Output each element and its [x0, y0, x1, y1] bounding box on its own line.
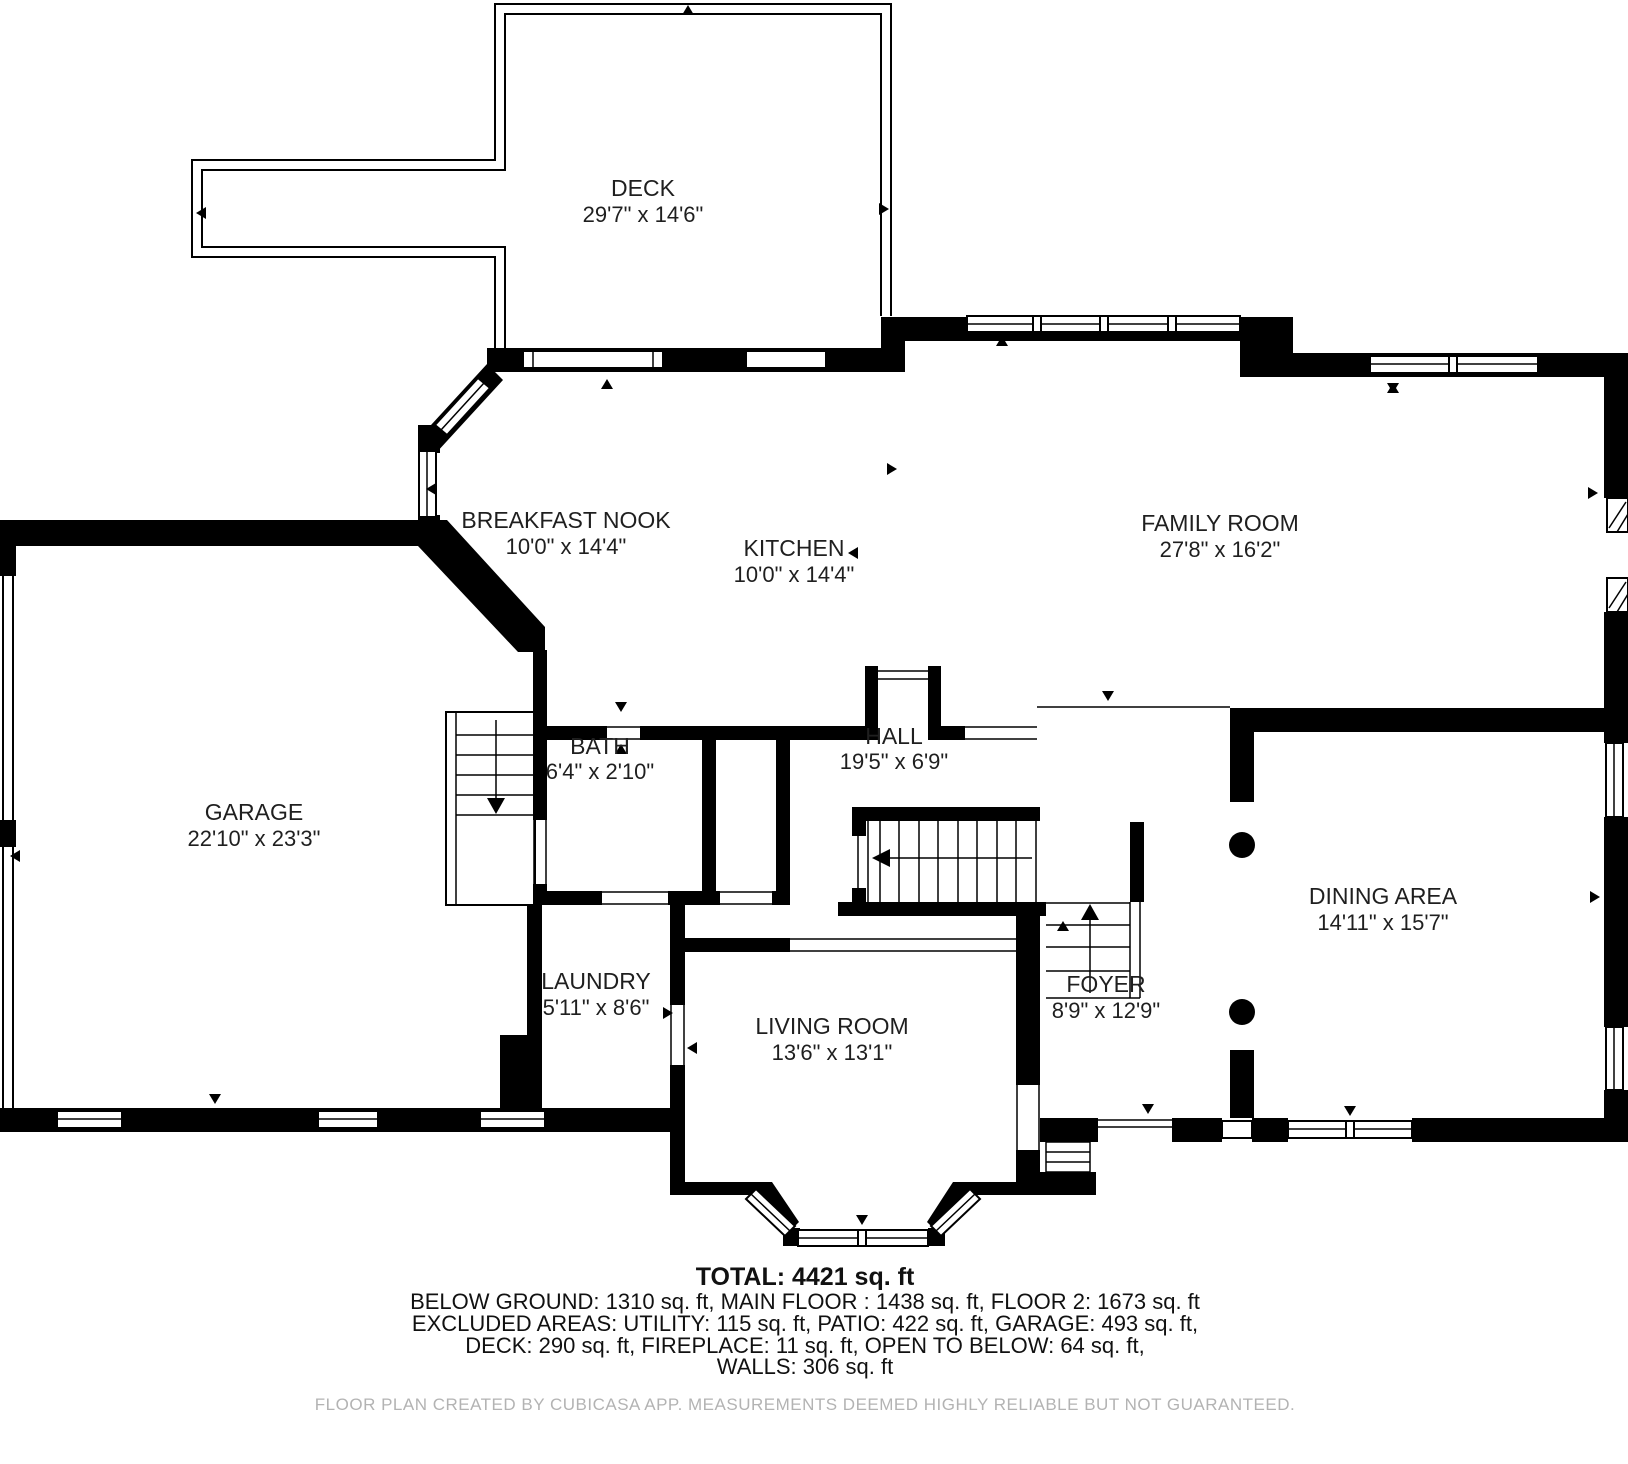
- room-dims-dining: 14'11" x 15'7": [1317, 910, 1448, 935]
- floor-plan-page: DECK 29'7" x 14'6" BREAKFAST NOOK 10'0" …: [0, 0, 1628, 1464]
- floor-plan-svg: DECK 29'7" x 14'6" BREAKFAST NOOK 10'0" …: [0, 0, 1628, 1464]
- room-label-nook: BREAKFAST NOOK: [461, 507, 671, 533]
- deck-outline: [192, 4, 891, 348]
- room-dims-bath: 6'4" x 2'10": [546, 759, 654, 784]
- room-dims-hall: 19'5" x 6'9": [840, 749, 948, 774]
- room-labels: DECK 29'7" x 14'6" BREAKFAST NOOK 10'0" …: [188, 175, 1458, 1065]
- summary-line4: WALLS: 306 sq. ft: [717, 1354, 894, 1379]
- room-label-deck: DECK: [611, 175, 676, 201]
- room-dims-foyer: 8'9" x 12'9": [1052, 998, 1160, 1023]
- room-label-foyer: FOYER: [1066, 971, 1145, 997]
- fireplace: [1607, 498, 1628, 612]
- room-dims-garage: 22'10" x 23'3": [188, 826, 321, 851]
- area-summary: TOTAL: 4421 sq. ft BELOW GROUND: 1310 sq…: [315, 1263, 1295, 1414]
- room-dims-laundry: 5'11" x 8'6": [543, 995, 650, 1020]
- room-dims-deck: 29'7" x 14'6": [583, 202, 704, 227]
- room-dims-living: 13'6" x 13'1": [772, 1040, 893, 1065]
- room-label-living: LIVING ROOM: [755, 1013, 908, 1039]
- room-label-garage: GARAGE: [205, 799, 303, 825]
- room-label-hall: HALL: [865, 723, 923, 749]
- stairs-garage-down: [446, 712, 535, 905]
- disclaimer-text: FLOOR PLAN CREATED BY CUBICASA APP. MEAS…: [315, 1395, 1295, 1414]
- room-label-family: FAMILY ROOM: [1141, 510, 1299, 536]
- room-label-laundry: LAUNDRY: [541, 968, 651, 994]
- stairs-hall-up: [858, 821, 1036, 902]
- windows: [57, 316, 1623, 1246]
- room-label-kitchen: KITCHEN: [744, 535, 845, 561]
- room-label-bath: BATH: [570, 733, 630, 759]
- dining-columns: [1229, 832, 1255, 1025]
- walls: [0, 317, 1628, 1246]
- room-dims-kitchen: 10'0" x 14'4": [734, 562, 855, 587]
- room-dims-nook: 10'0" x 14'4": [506, 534, 627, 559]
- summary-total: TOTAL: 4421 sq. ft: [696, 1263, 915, 1291]
- entry-steps: [1046, 1142, 1090, 1172]
- room-label-dining: DINING AREA: [1309, 883, 1458, 909]
- room-dims-family: 27'8" x 16'2": [1160, 537, 1281, 562]
